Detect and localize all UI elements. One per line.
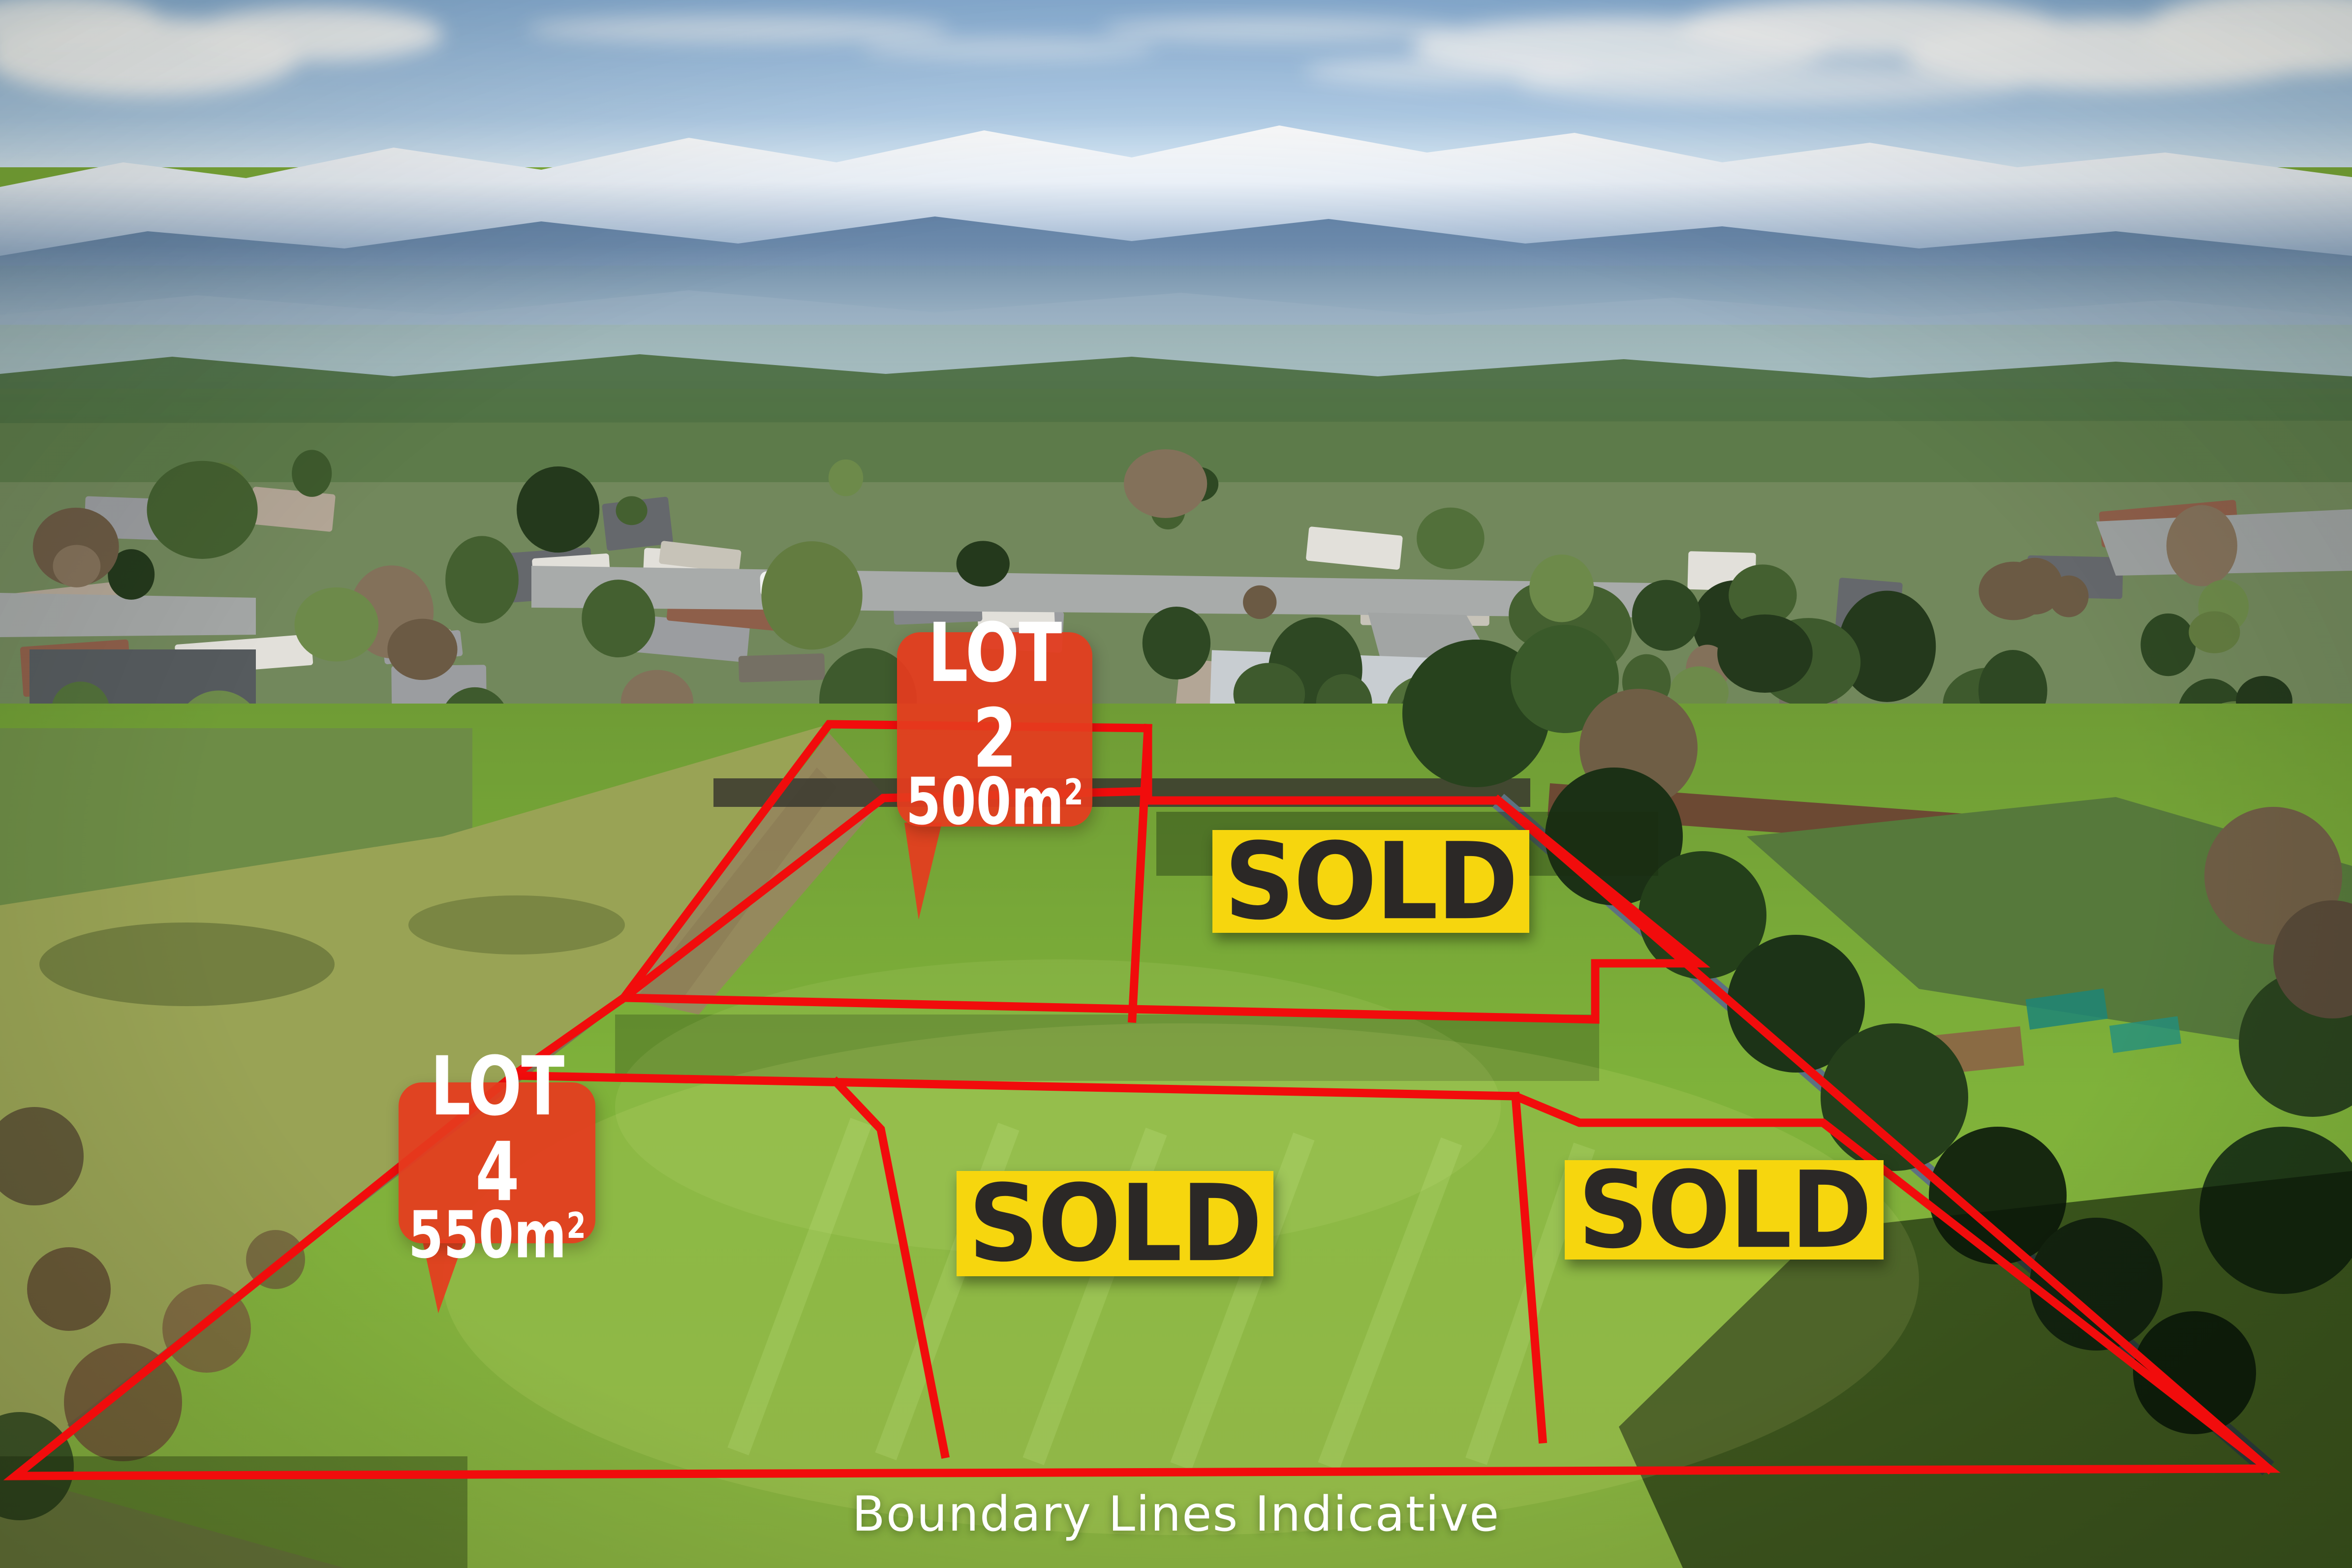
lot-2-tag: LOT 2 500m2 [897,632,1092,827]
boundary-lines-overlay [0,0,2352,1568]
aerial-photo-scene: LOT 2 500m2 LOT 4 550m2 SOLD SOLD SOLD B… [0,0,2352,1568]
sold-badge-3: SOLD [1565,1160,1884,1260]
lot-4-tag: LOT 4 550m2 [399,1082,595,1243]
sold-lots-divider-line [1516,1096,1543,1439]
lot-4-name: LOT 4 [399,1045,595,1215]
lot2-divider-line [1132,728,1148,1018]
lot-4-area: 550m2 [408,1202,586,1270]
fence-diagonal-boundary [1498,800,2268,1469]
sold-badge-1: SOLD [1212,830,1529,933]
lot-2-name: LOT 2 [897,611,1092,782]
boundary-disclaimer-caption: Boundary Lines Indicative [852,1486,1500,1542]
lot-2-area: 500m2 [906,769,1083,836]
lot4-divider-line [836,1082,945,1454]
sold-badge-2: SOLD [957,1171,1273,1276]
